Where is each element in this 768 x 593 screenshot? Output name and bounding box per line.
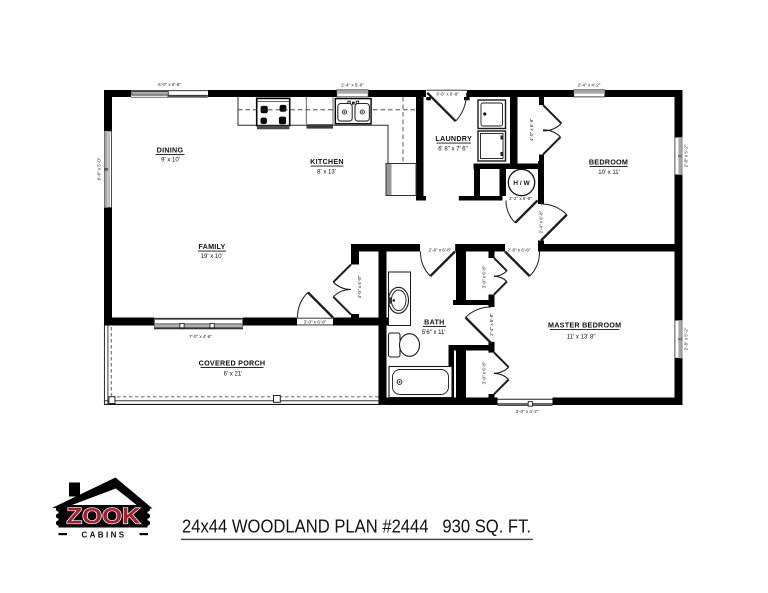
svg-text:H / W: H / W: [513, 180, 530, 187]
svg-text:DINING: DINING: [157, 146, 184, 155]
svg-text:5'6" x 11': 5'6" x 11': [422, 330, 446, 336]
svg-text:2'-4" x 6'-8": 2'-4" x 6'-8": [489, 313, 494, 336]
svg-text:2'-4" x 5'-0": 2'-4" x 5'-0": [341, 83, 364, 88]
svg-text:KITCHEN: KITCHEN: [310, 157, 344, 166]
svg-text:6'-0" x 6'-8": 6'-0" x 6'-8": [158, 82, 181, 87]
svg-text:2'-8" x 6'-8": 2'-8" x 6'-8": [508, 248, 531, 253]
svg-text:19' x 10': 19' x 10': [201, 254, 223, 260]
svg-text:2'-8" x 6'-8": 2'-8" x 6'-8": [429, 247, 452, 252]
svg-text:10' x 11': 10' x 11': [598, 170, 620, 176]
svg-text:4'-0" x 6'-8": 4'-0" x 6'-8": [357, 275, 362, 298]
svg-text:11' x 13' 8": 11' x 13' 8": [567, 335, 596, 341]
svg-text:24x44 WOODLAND PLAN #2444 93: 24x44 WOODLAND PLAN #2444 930 SQ. FT.: [182, 517, 531, 537]
svg-text:MASTER BEDROOM: MASTER BEDROOM: [548, 321, 621, 330]
svg-text:ZOOK: ZOOK: [67, 504, 141, 529]
svg-text:2'-8" x 5'-2": 2'-8" x 5'-2": [684, 327, 689, 350]
svg-text:CABINS: CABINS: [81, 531, 126, 540]
svg-text:6' x 21': 6' x 21': [224, 372, 243, 378]
svg-text:3'-0" x 6'-8": 3'-0" x 6'-8": [482, 361, 487, 384]
svg-text:LAUNDRY: LAUNDRY: [435, 134, 472, 143]
svg-text:2'-8" x 5'-2": 2'-8" x 5'-2": [684, 144, 689, 167]
svg-text:BATH: BATH: [424, 318, 444, 327]
svg-text:FAMILY: FAMILY: [198, 242, 225, 251]
svg-text:9' x 10': 9' x 10': [161, 158, 180, 164]
svg-text:3'-0" x 6'-8": 3'-0" x 6'-8": [482, 265, 487, 288]
svg-text:7'-0" x 4'-6": 7'-0" x 4'-6": [189, 334, 212, 339]
svg-text:6'-8" x 5'-0": 6'-8" x 5'-0": [97, 157, 102, 180]
svg-text:3'-0" x 6'-8": 3'-0" x 6'-8": [304, 320, 327, 325]
svg-text:BEDROOM: BEDROOM: [589, 158, 628, 167]
svg-text:2'-4" x 6'-8": 2'-4" x 6'-8": [539, 210, 544, 233]
svg-text:3'-0" x 4'-2": 3'-0" x 4'-2": [516, 409, 539, 414]
svg-text:2'-4" x 4'-2": 2'-4" x 4'-2": [578, 83, 601, 88]
svg-text:2'-2" x 6'-8": 2'-2" x 6'-8": [509, 196, 532, 201]
svg-text:COVERED PORCH: COVERED PORCH: [199, 359, 266, 368]
svg-text:8' x 13': 8' x 13': [317, 170, 336, 176]
svg-text:3'-0" x 6'-8": 3'-0" x 6'-8": [436, 92, 459, 97]
svg-text:4'-0" x 6'-8": 4'-0" x 6'-8": [529, 118, 534, 141]
svg-text:6' 8" x 7' 6": 6' 8" x 7' 6": [438, 147, 468, 153]
